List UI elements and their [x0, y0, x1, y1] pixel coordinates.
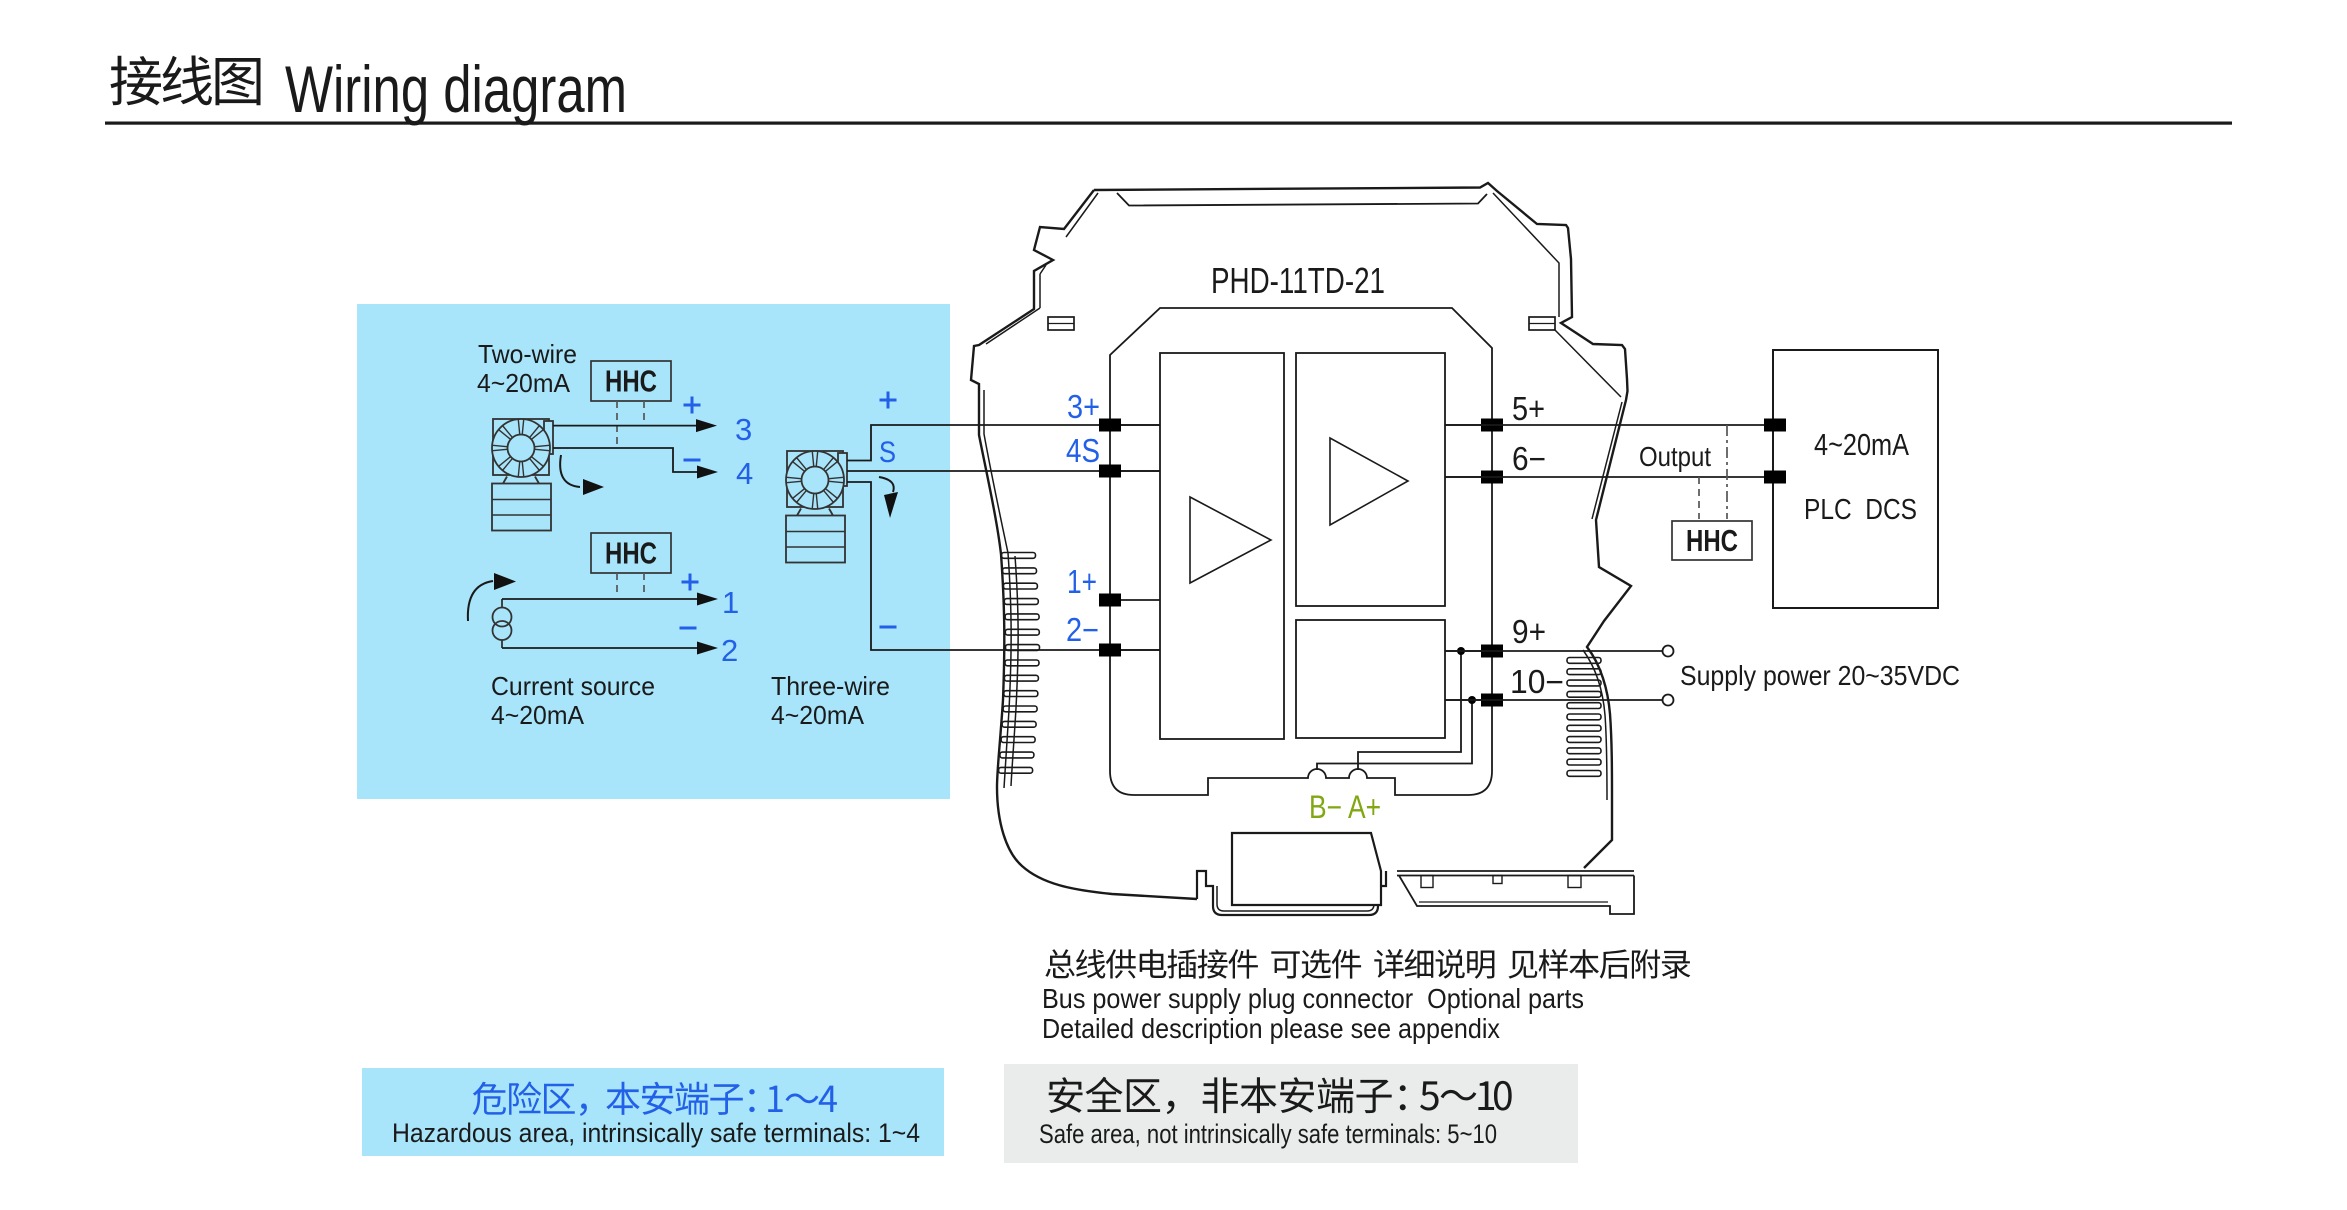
svg-text:3: 3 — [735, 412, 752, 447]
svg-text:4~20mA: 4~20mA — [491, 700, 585, 730]
svg-text:HHC: HHC — [605, 364, 657, 399]
svg-text:2: 2 — [721, 633, 738, 668]
svg-text:4: 4 — [736, 456, 753, 491]
svg-text:Safe area, not intrinsically s: Safe area, not intrinsically safe termin… — [1039, 1119, 1497, 1149]
svg-text:Two-wire: Two-wire — [478, 339, 577, 369]
svg-text:Supply power 20~35VDC: Supply power 20~35VDC — [1680, 660, 1960, 691]
svg-text:3+: 3+ — [1067, 388, 1100, 425]
svg-text:4~20mA: 4~20mA — [771, 700, 865, 730]
svg-text:Bus power supply plug connecto: Bus power supply plug connector Optional… — [1042, 983, 1584, 1014]
svg-text:4S: 4S — [1066, 432, 1100, 469]
svg-text:6−: 6− — [1512, 440, 1546, 477]
svg-text:Three-wire: Three-wire — [771, 671, 890, 701]
svg-text:2−: 2− — [1066, 611, 1099, 648]
svg-text:Wiring diagram: Wiring diagram — [285, 52, 627, 126]
svg-text:Current source: Current source — [491, 671, 655, 701]
svg-text:Output: Output — [1639, 441, 1711, 472]
svg-text:HHC: HHC — [605, 536, 657, 571]
svg-text:1+: 1+ — [1067, 563, 1097, 600]
svg-text:HHC: HHC — [1686, 523, 1738, 558]
svg-text:5+: 5+ — [1512, 390, 1545, 427]
svg-text:Hazardous area, intrinsically: Hazardous area, intrinsically safe termi… — [392, 1118, 920, 1148]
svg-text:9+: 9+ — [1512, 613, 1546, 650]
svg-text:4~20mA: 4~20mA — [477, 368, 571, 398]
svg-text:PLC DCS: PLC DCS — [1804, 494, 1917, 526]
svg-text:Detailed description please se: Detailed description please see appendix — [1042, 1013, 1500, 1044]
svg-text:4~20mA: 4~20mA — [1814, 427, 1909, 462]
svg-text:10−: 10− — [1510, 663, 1564, 700]
svg-text:S: S — [879, 436, 896, 469]
svg-text:1: 1 — [722, 585, 739, 620]
svg-text:B− A+: B− A+ — [1309, 789, 1381, 825]
svg-text:PHD-11TD-21: PHD-11TD-21 — [1211, 260, 1385, 301]
